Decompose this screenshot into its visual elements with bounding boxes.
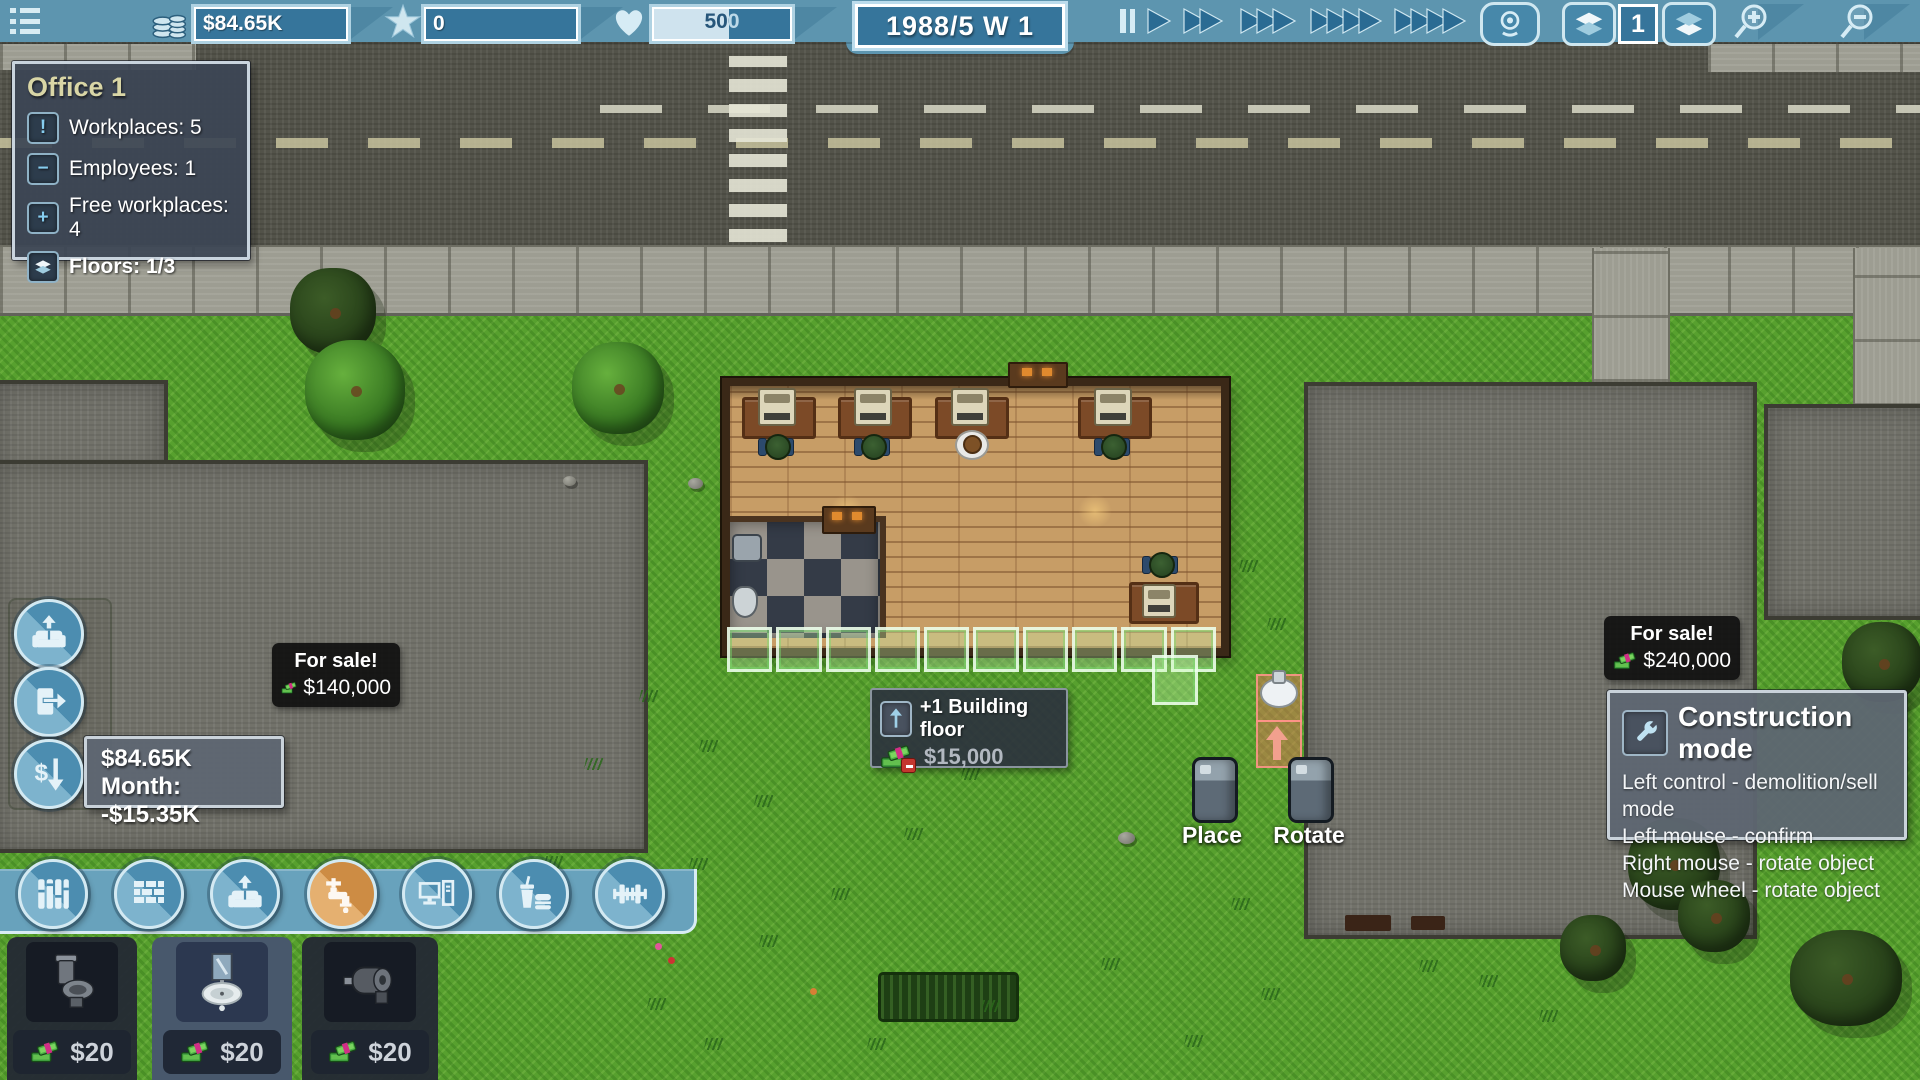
ghost-arrow-head [1266, 726, 1288, 740]
finance-button[interactable]: $ [14, 739, 84, 809]
speed-3-button[interactable] [1240, 8, 1298, 34]
construction-hint: Right mouse - rotate object [1622, 850, 1892, 877]
office-panel-title: Office 1 [27, 72, 235, 103]
faucet-icon [323, 875, 361, 913]
office-computer [1142, 584, 1176, 618]
for-sale-tooltip: For sale! $140,000 [272, 643, 400, 707]
zoom-in-button[interactable] [1732, 2, 1802, 42]
month-value: Month: -$15.35K [101, 773, 267, 829]
construction-title: Construction mode [1678, 701, 1892, 765]
dumbbell-icon [611, 875, 649, 913]
wrench-icon [1622, 710, 1668, 756]
plus-icon: + [27, 202, 59, 234]
ghost-arrow-shaft [1273, 738, 1281, 760]
office-stat-row: ! Workplaces: 5 [27, 112, 235, 144]
construction-mode-panel: Construction mode Left control - demolit… [1607, 690, 1907, 840]
rotate-bin-button[interactable] [1288, 757, 1334, 823]
svg-text:$: $ [35, 760, 49, 787]
reputation-display: 0 [424, 7, 578, 41]
category-food[interactable] [499, 859, 569, 929]
finance-panel: $84.65K Month: -$15.35K [84, 736, 284, 808]
far-sidewalk-right [1708, 44, 1920, 72]
flooring-icon [34, 875, 72, 913]
money-cost-icon [880, 744, 914, 770]
office-chair [1094, 432, 1130, 464]
bricks-icon [131, 876, 167, 912]
zoom-out-icon [1838, 2, 1882, 42]
building-floor-tooltip: +1 Building floor $15,000 [870, 688, 1068, 768]
category-walls[interactable] [114, 859, 184, 929]
money-icon [1613, 649, 1638, 673]
office-computer [951, 388, 989, 426]
office-building[interactable] [722, 378, 1229, 656]
for-sale-title: For sale! [281, 650, 391, 673]
tree [1790, 930, 1902, 1026]
door [1411, 916, 1445, 930]
category-flooring[interactable] [18, 859, 88, 929]
sidewalk-vertical-right [1853, 248, 1920, 406]
employees-label: Employees: 1 [69, 157, 196, 181]
tree [305, 340, 405, 440]
office-info-panel: Office 1 ! Workplaces: 5 − Employees: 1 … [12, 61, 250, 260]
place-bin-button[interactable] [1192, 757, 1238, 823]
sideboard [1008, 362, 1068, 388]
layers-icon [27, 251, 59, 283]
exclamation-icon: ! [27, 112, 59, 144]
flower [655, 943, 662, 950]
money-icon [281, 676, 298, 700]
far-right-lot [1764, 404, 1920, 620]
speed-5-button[interactable] [1394, 8, 1468, 34]
floors-label: Floors: 1/3 [69, 255, 175, 279]
office-chair [758, 432, 794, 464]
workplaces-label: Workplaces: 5 [69, 116, 202, 140]
camera-button[interactable] [1480, 2, 1540, 46]
price-tag: $20 [163, 1030, 281, 1074]
furniture-pickup-button[interactable] [14, 599, 84, 669]
for-sale-price: $240,000 [1643, 649, 1731, 673]
minus-icon: − [27, 153, 59, 185]
sink-image [176, 942, 268, 1022]
zoom-out-button[interactable] [1838, 2, 1908, 42]
category-fitness[interactable] [595, 859, 665, 929]
dollar-down-icon: $ [29, 754, 69, 794]
rotate-label: Rotate [1262, 822, 1356, 849]
crosswalk [729, 56, 787, 242]
computer-icon [418, 875, 456, 913]
floor-up-button[interactable] [1562, 2, 1616, 46]
speed-2-button[interactable] [1183, 8, 1225, 34]
money-display: $84.65K [194, 7, 348, 41]
star-icon [383, 3, 423, 41]
bathroom-sink [732, 534, 762, 562]
free-workplaces-label: Free workplaces: 4 [69, 194, 235, 242]
shop-item-sink-selected[interactable]: $20 [152, 937, 292, 1080]
office-computer [854, 388, 892, 426]
road-lane-line [600, 105, 1920, 113]
category-plumbing-selected[interactable] [307, 859, 377, 929]
flower [810, 988, 817, 995]
category-electronics[interactable] [402, 859, 472, 929]
camera-icon [1494, 8, 1526, 40]
zoom-in-icon [1732, 2, 1776, 42]
door [1345, 915, 1391, 931]
balance-value: $84.65K [101, 745, 267, 773]
office-computer [1094, 388, 1132, 426]
pause-button[interactable] [1120, 9, 1135, 33]
rock [688, 478, 703, 489]
food-icon [515, 875, 553, 913]
furniture-icon [225, 874, 265, 914]
speed-4-button[interactable] [1310, 8, 1384, 34]
rock [563, 476, 576, 486]
money-icon [180, 1040, 212, 1064]
flower [668, 957, 675, 964]
toilet-image [26, 942, 118, 1022]
current-floor-indicator: 1 [1618, 4, 1658, 44]
for-sale-title: For sale! [1613, 623, 1731, 646]
money-icon [328, 1040, 360, 1064]
floor-tooltip-price: $15,000 [924, 744, 1004, 770]
office-stat-row: + Free workplaces: 4 [27, 194, 235, 242]
arrow-up-icon [880, 701, 912, 737]
date-display: 1988/5 W 1 [855, 4, 1065, 48]
floor-down-button[interactable] [1662, 2, 1716, 46]
office-computer [758, 388, 796, 426]
for-sale-tooltip: For sale! $240,000 [1604, 616, 1740, 680]
bathroom-toilet [732, 586, 758, 618]
construction-hint: Left mouse - confirm [1622, 823, 1892, 850]
price-tag: $20 [311, 1030, 429, 1074]
sofa-up-icon [29, 614, 69, 654]
heart-icon [610, 5, 648, 39]
office-stat-row: Floors: 1/3 [27, 251, 235, 283]
office-chair [1142, 550, 1178, 582]
layers-down-icon [1672, 10, 1706, 38]
sidewalk-vertical [1592, 248, 1670, 382]
health-meter: 500 500 [652, 7, 792, 41]
building-expansion-row[interactable] [727, 627, 1216, 672]
category-furniture[interactable] [210, 859, 280, 929]
employee [951, 426, 987, 458]
game-screen: Place Rotate Office 1 ! Workplaces: 5 − … [0, 0, 1920, 1080]
exit-door-icon [30, 683, 68, 721]
toilet-paper-holder-image [324, 942, 416, 1022]
office-stat-row: − Employees: 1 [27, 153, 235, 185]
ghost-sink-faucet [1272, 670, 1286, 684]
layers-up-icon [1572, 10, 1606, 38]
shop-item-paper-holder[interactable]: $20 [302, 937, 438, 1080]
rock [1118, 832, 1135, 844]
exit-mode-button[interactable] [14, 667, 84, 737]
shop-item-toilet[interactable]: $20 [7, 937, 137, 1080]
highlight-tile [1152, 655, 1198, 705]
tree [1560, 915, 1626, 981]
for-sale-price: $140,000 [303, 676, 391, 700]
tree [572, 342, 664, 434]
top-bar: $84.65K 0 500 500 1988/5 W 1 [0, 0, 1920, 42]
speed-1-button[interactable] [1147, 8, 1173, 34]
ceiling-light [1078, 494, 1112, 528]
construction-hint: Mouse wheel - rotate object [1622, 877, 1892, 904]
office-cabinet [822, 506, 876, 534]
road-center-line [0, 138, 1920, 148]
office-chair [854, 432, 890, 464]
place-label: Place [1165, 822, 1259, 849]
construction-hint: Left control - demolition/sell mode [1622, 769, 1892, 823]
floor-tooltip-label: +1 Building floor [920, 696, 1058, 742]
placement-ghost-sink [1256, 674, 1302, 770]
price-tag: $20 [13, 1030, 131, 1074]
coins-icon [150, 5, 188, 39]
hedge [878, 972, 1019, 1022]
money-icon [30, 1040, 62, 1064]
menu-button[interactable] [10, 6, 46, 36]
